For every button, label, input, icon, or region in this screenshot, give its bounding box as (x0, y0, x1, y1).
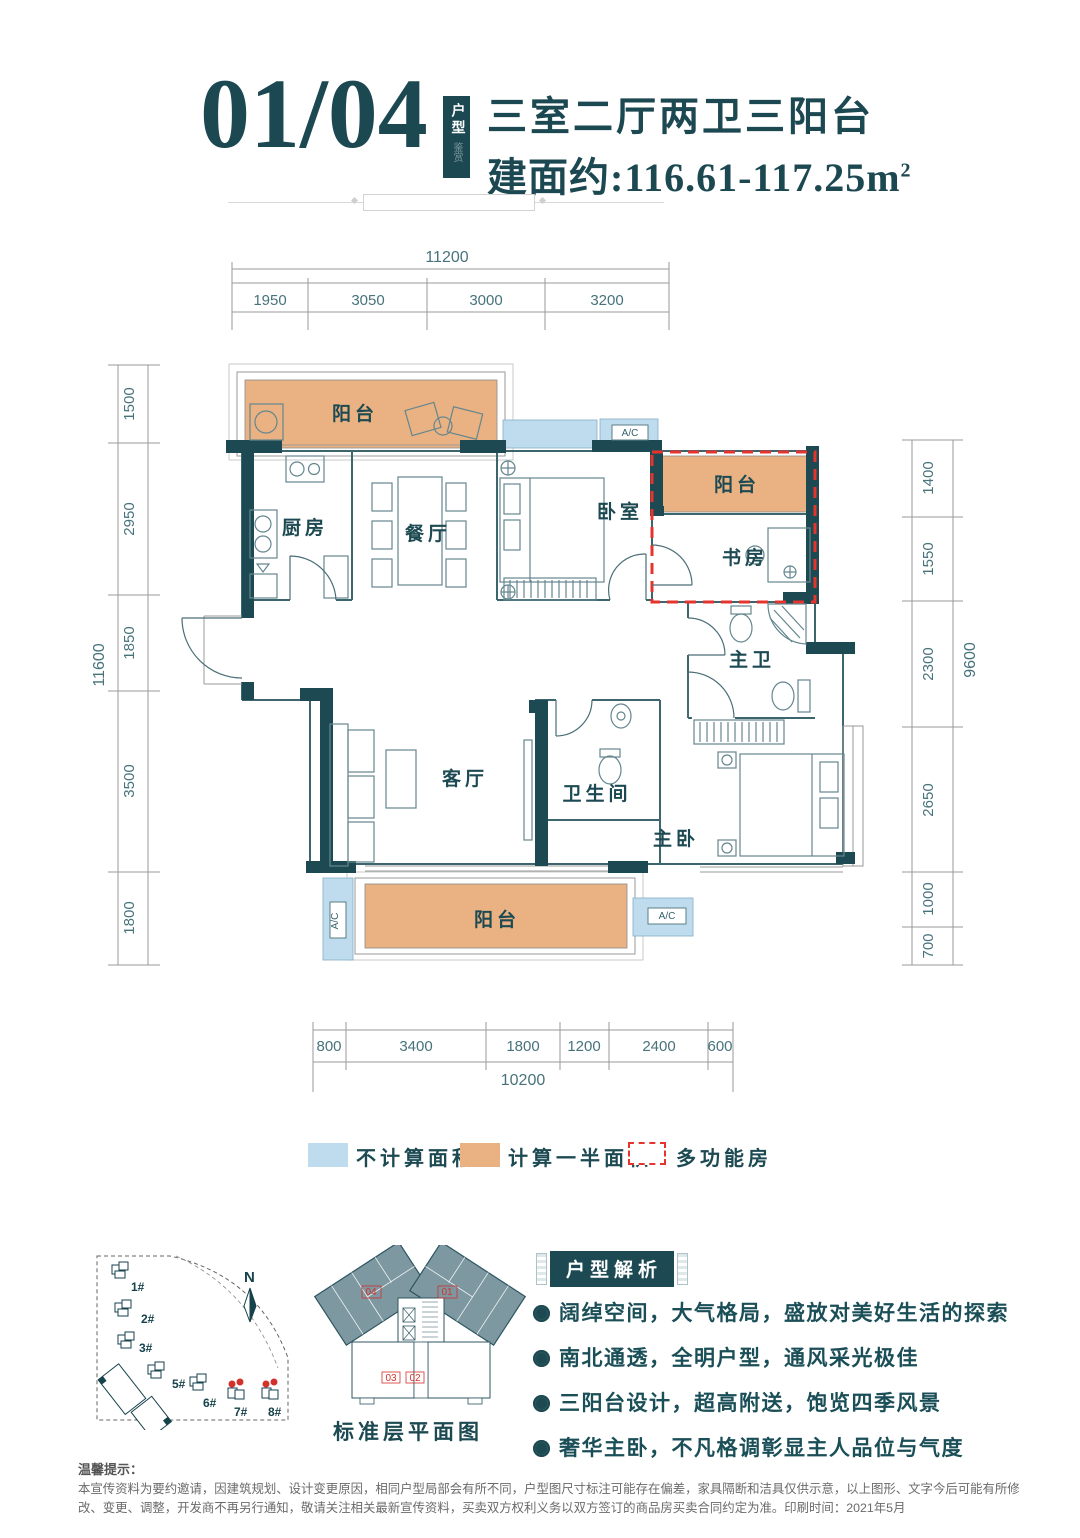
analysis-item: 南北通透，全明户型，通风采光极佳 (533, 1342, 1033, 1372)
building-icon-2 (115, 1300, 131, 1316)
standard-floor-svg: 04 01 03 02 (300, 1245, 550, 1445)
disclaimer-title: 温馨提示： (78, 1459, 1033, 1478)
building-icon-5 (148, 1362, 164, 1378)
legend-label-multi-room: 多功能房 (676, 1142, 772, 1171)
site-plan-svg: N 1# 2# 3# 5# 6# 7# (85, 1245, 310, 1430)
unit-summary: 三室二厅两卫三阳台 建面约:116.61-117.25m2 (487, 84, 912, 203)
building-icon-6 (190, 1374, 206, 1390)
legend-swatch-blue (308, 1143, 348, 1167)
area-text: 建面约:116.61-117.25m (487, 155, 901, 200)
building-label-2: 2# (141, 1312, 155, 1326)
svg-text:1800: 1800 (506, 1038, 539, 1055)
building-label-3: 3# (139, 1341, 153, 1355)
ornament-left (536, 1253, 547, 1285)
svg-text:3050: 3050 (351, 292, 384, 309)
svg-text:1850: 1850 (121, 626, 138, 659)
unit-label-bottom-right: 02 (409, 1373, 421, 1384)
building-label-5: 5# (172, 1377, 186, 1391)
analysis-item-text: 奢华主卧，不凡格调彰显主人品位与气度 (559, 1436, 964, 1460)
svg-text:A/C: A/C (622, 428, 639, 439)
building-label-1: 1# (131, 1280, 145, 1294)
unit-type-badge: 户型 鉴赏 (443, 96, 470, 178)
analysis-item-text: 阔绰空间，大气格局，盛放对美好生活的探索 (559, 1301, 1009, 1325)
svg-text:800: 800 (316, 1038, 341, 1055)
dimension-band-left: 1500 2950 1850 3500 1800 11600 (91, 365, 160, 965)
svg-text:10200: 10200 (501, 1072, 546, 1089)
svg-text:3500: 3500 (121, 764, 138, 797)
bullet-icon (533, 1395, 550, 1412)
disclaimer-body: 本宣传资料为要约邀请，因建筑规划、设计变更原因，相同户型局部会有所不同，户型图尺… (78, 1480, 1033, 1518)
lower-units (352, 1342, 490, 1404)
unit-label-bottom-left: 03 (385, 1373, 397, 1384)
analysis-item: 三阳台设计，超高附送，饱览四季风景 (533, 1387, 1033, 1417)
svg-text:700: 700 (920, 933, 937, 958)
svg-text:2950: 2950 (121, 502, 138, 535)
svg-text:3000: 3000 (469, 292, 502, 309)
label-dining: 餐厅 (405, 522, 451, 545)
bullet-icon (533, 1350, 550, 1367)
ornament-right (677, 1253, 688, 1285)
badge-subtext: 鉴赏 (449, 142, 464, 162)
analysis-item-text: 三阳台设计，超高附送，饱览四季风景 (559, 1391, 942, 1415)
svg-text:1550: 1550 (920, 542, 937, 575)
analysis-header: 户型解析 (533, 1251, 691, 1287)
bullet-icon (533, 1305, 550, 1322)
window-bays (323, 419, 693, 960)
area-superscript: 2 (901, 160, 912, 182)
analysis-item: 阔绰空间，大气格局，盛放对美好生活的探索 (533, 1297, 1033, 1327)
svg-text:2400: 2400 (642, 1038, 675, 1055)
svg-text:1950: 1950 (253, 292, 286, 309)
analysis-item: 奢华主卧，不凡格调彰显主人品位与气度 (533, 1432, 1033, 1462)
building-icon-8 (262, 1379, 278, 1400)
svg-text:A/C: A/C (659, 911, 676, 922)
building-icon-1 (112, 1262, 128, 1278)
analysis-list: 阔绰空间，大气格局，盛放对美好生活的探索 南北通透，全明户型，通风采光极佳 三阳… (533, 1297, 1033, 1477)
svg-text:11200: 11200 (425, 249, 468, 266)
building-icon-3 (118, 1332, 134, 1348)
label-balcony-right: 阳台 (714, 473, 760, 496)
svg-text:1500: 1500 (121, 387, 138, 420)
label-balcony-top: 阳台 (332, 402, 378, 425)
svg-text:11600: 11600 (91, 643, 108, 686)
legend-swatch-orange (460, 1143, 500, 1167)
svg-text:2650: 2650 (920, 783, 937, 816)
svg-text:3200: 3200 (590, 292, 623, 309)
dimension-band-bottom: 800 3400 1800 1200 2400 600 10200 (313, 1022, 733, 1092)
label-kitchen: 厨房 (282, 516, 328, 539)
badge-text: 户型 (447, 103, 467, 137)
label-master-bedroom: 主卧 (653, 828, 699, 850)
building-icon-7 (228, 1379, 244, 1400)
floor-plan-svg: 11200 1950 3050 3000 3200 1500 2950 1850… (0, 225, 1080, 1120)
label-balcony-bottom: 阳台 (474, 908, 520, 931)
label-master-bath: 主卫 (729, 649, 775, 671)
standard-floor-title: 标准层平面图 (308, 1416, 508, 1446)
legend-label-no-area: 不计算面积 (356, 1142, 476, 1171)
dimension-band-right: 1400 1550 2300 2650 1000 700 9600 (902, 440, 979, 965)
building-label-7: 7# (234, 1405, 248, 1419)
svg-text:2300: 2300 (920, 647, 937, 680)
label-bedroom: 卧室 (597, 500, 643, 523)
disclaimer: 温馨提示： 本宣传资料为要约邀请，因建筑规划、设计变更原因，相同户型局部会有所不… (78, 1459, 1033, 1518)
area-title: 建面约:116.61-117.25m2 (487, 145, 912, 203)
header-divider-ornament (363, 194, 535, 211)
label-study: 书房 (722, 546, 768, 569)
bullet-icon (533, 1440, 550, 1457)
svg-text:3400: 3400 (399, 1038, 432, 1055)
svg-text:9600: 9600 (962, 642, 979, 678)
svg-text:1800: 1800 (121, 901, 138, 934)
label-bath: 卫生间 (562, 782, 631, 805)
svg-text:1200: 1200 (567, 1038, 600, 1055)
north-compass: N (244, 1269, 256, 1322)
svg-text:1400: 1400 (920, 461, 937, 494)
svg-text:N: N (244, 1269, 255, 1286)
unit-label-top-right: 01 (441, 1287, 453, 1298)
label-living: 客厅 (442, 767, 488, 790)
building-label-8: 8# (268, 1405, 282, 1419)
svg-text:1000: 1000 (920, 882, 937, 915)
legend-swatch-dashed (628, 1142, 666, 1165)
floorplan-brochure-page: 01/04 户型 鉴赏 三室二厅两卫三阳台 建面约:116.61-117.25m… (0, 0, 1080, 1538)
dimension-band-top: 11200 1950 3050 3000 3200 (232, 249, 669, 330)
unit-code-title: 01/04 (200, 66, 428, 161)
svg-text:A/C: A/C (330, 913, 341, 930)
analysis-title: 户型解析 (550, 1251, 674, 1287)
building-label-6: 6# (203, 1396, 217, 1410)
room-config-title: 三室二厅两卫三阳台 (487, 84, 912, 142)
analysis-item-text: 南北通透，全明户型，通风采光极佳 (559, 1346, 919, 1370)
unit-label-top-left: 04 (365, 1287, 377, 1298)
svg-text:600: 600 (707, 1038, 732, 1055)
